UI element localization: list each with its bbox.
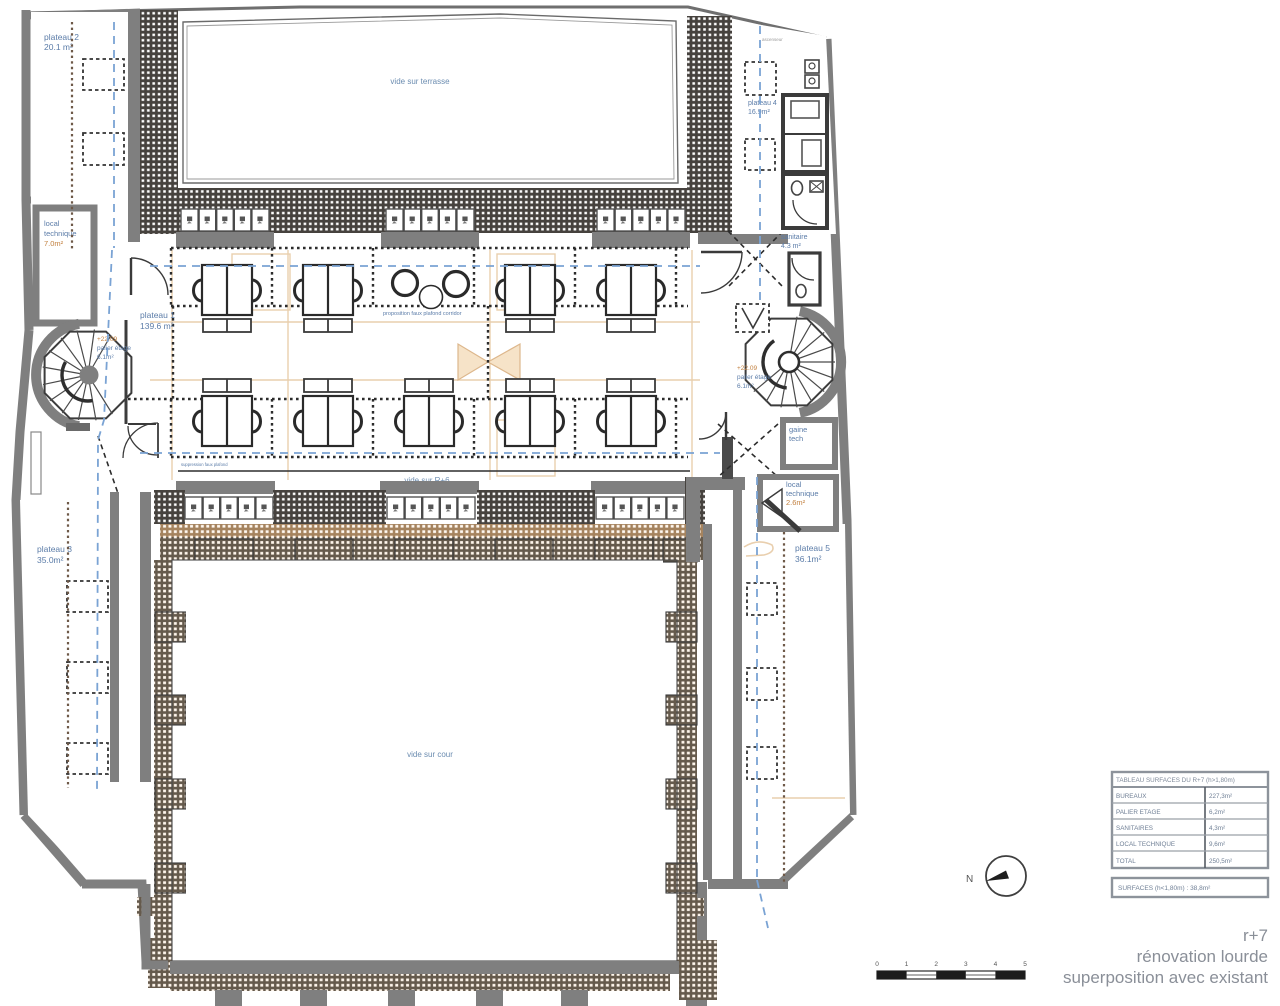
- svg-text:r+7: r+7: [1243, 926, 1268, 945]
- svg-text:SURFACES (h<1,80m) : 38,8m²: SURFACES (h<1,80m) : 38,8m²: [1118, 885, 1211, 892]
- svg-text:9,6m²: 9,6m²: [1209, 841, 1225, 848]
- svg-text:local: local: [44, 219, 60, 228]
- svg-text:tech: tech: [789, 434, 803, 443]
- svg-text:3: 3: [964, 961, 968, 968]
- svg-text:36.1m²: 36.1m²: [795, 554, 822, 564]
- svg-text:plateau 4: plateau 4: [748, 100, 777, 107]
- svg-text:palier étage: palier étage: [737, 374, 771, 381]
- svg-text:6,2m²: 6,2m²: [1209, 809, 1225, 816]
- svg-text:technique: technique: [786, 489, 819, 498]
- svg-text:2.6m²: 2.6m²: [786, 498, 806, 507]
- svg-text:N: N: [966, 874, 973, 885]
- svg-text:+22.09: +22.09: [737, 365, 757, 372]
- svg-text:local: local: [786, 480, 802, 489]
- svg-text:7.0m²: 7.0m²: [44, 239, 64, 248]
- svg-text:139.6 m²: 139.6 m²: [140, 321, 174, 331]
- svg-text:plateau 2: plateau 2: [44, 32, 79, 42]
- svg-text:0: 0: [875, 961, 879, 968]
- svg-text:BUREAUX: BUREAUX: [1116, 793, 1147, 800]
- svg-text:4: 4: [994, 961, 998, 968]
- svg-text:suppression faux plafond: suppression faux plafond: [181, 462, 228, 467]
- svg-text:palier étage: palier étage: [97, 345, 131, 352]
- svg-text:proposition faux plafond corri: proposition faux plafond corridor: [383, 311, 462, 317]
- svg-text:PALIER ETAGE: PALIER ETAGE: [1116, 809, 1161, 816]
- svg-text:plateau 1: plateau 1: [140, 310, 175, 320]
- svg-text:vide sur terrasse: vide sur terrasse: [390, 77, 450, 86]
- svg-text:TABLEAU SURFACES DU R+7 (h>1,8: TABLEAU SURFACES DU R+7 (h>1,80m): [1116, 777, 1235, 784]
- svg-text:rénovation lourde: rénovation lourde: [1137, 947, 1268, 966]
- svg-text:4.3 m²: 4.3 m²: [781, 243, 802, 250]
- svg-text:TOTAL: TOTAL: [1116, 858, 1136, 865]
- svg-text:5: 5: [1023, 961, 1027, 968]
- svg-text:superposition avec existant: superposition avec existant: [1063, 968, 1268, 987]
- svg-text:250,5m²: 250,5m²: [1209, 858, 1232, 865]
- svg-text:227,3m²: 227,3m²: [1209, 793, 1232, 800]
- svg-text:ascenseur: ascenseur: [762, 37, 783, 42]
- svg-text:1: 1: [905, 961, 909, 968]
- svg-text:SANITAIRES: SANITAIRES: [1116, 825, 1153, 832]
- svg-text:gaine: gaine: [789, 425, 807, 434]
- svg-text:4,3m²: 4,3m²: [1209, 825, 1225, 832]
- svg-text:plateau 5: plateau 5: [795, 543, 830, 553]
- svg-text:2: 2: [934, 961, 938, 968]
- svg-text:20.1 m²: 20.1 m²: [44, 42, 73, 52]
- svg-text:6.1m²: 6.1m²: [97, 354, 114, 361]
- svg-text:6.1m²: 6.1m²: [737, 383, 754, 390]
- svg-text:sanitaire: sanitaire: [781, 234, 808, 241]
- svg-text:vide sur cour: vide sur cour: [407, 750, 453, 759]
- svg-text:35.0m²: 35.0m²: [37, 555, 64, 565]
- svg-text:LOCAL TECHNIQUE: LOCAL TECHNIQUE: [1116, 841, 1175, 848]
